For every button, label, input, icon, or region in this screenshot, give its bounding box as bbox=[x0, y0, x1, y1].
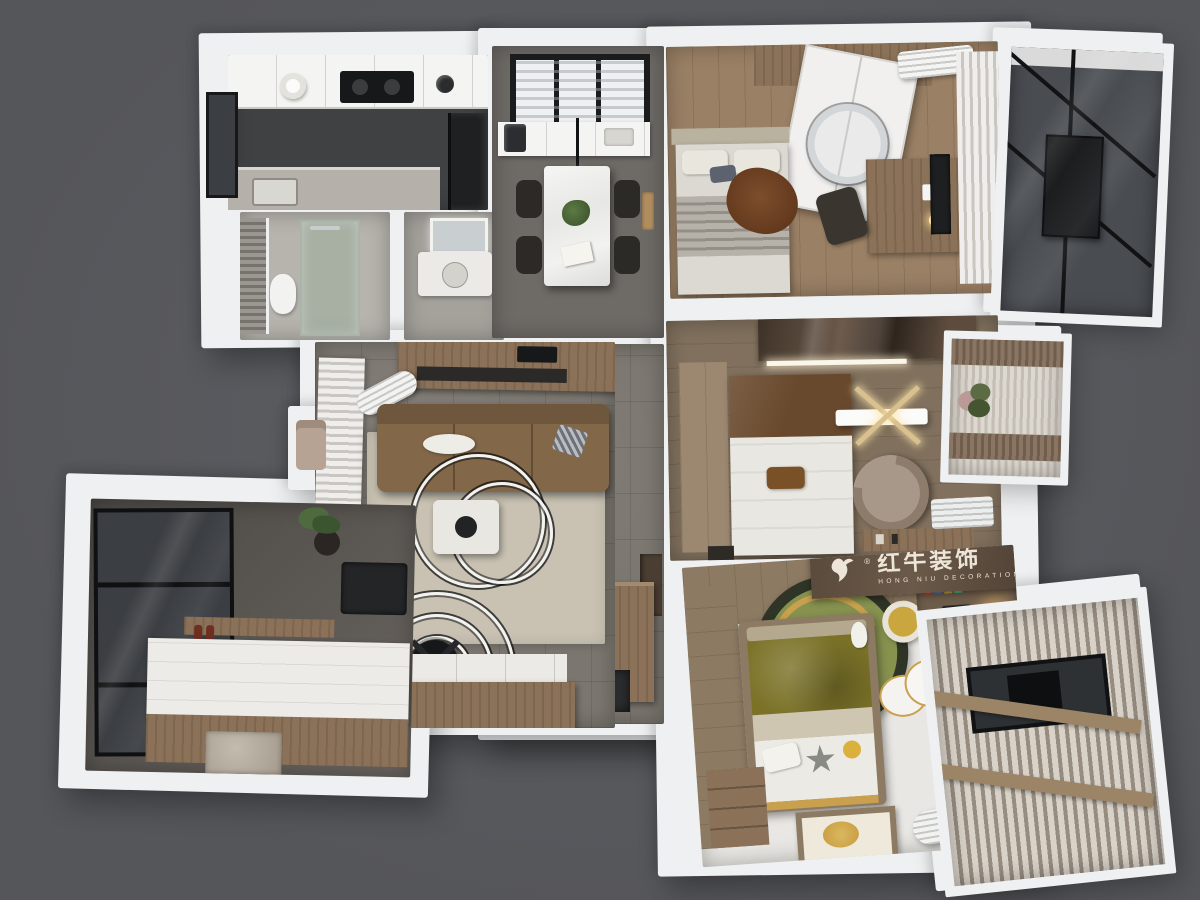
dining-chair bbox=[516, 180, 542, 218]
dining-chair bbox=[614, 180, 640, 218]
drape bbox=[951, 339, 1064, 368]
bed-pillow bbox=[766, 467, 804, 490]
kitchen-sink bbox=[252, 178, 298, 206]
master-bed bbox=[729, 374, 854, 556]
balcony-armchair bbox=[296, 420, 326, 470]
vanity-sink bbox=[418, 252, 492, 296]
coffee-machine bbox=[504, 124, 526, 152]
bed bbox=[676, 143, 791, 295]
bathroom-shower bbox=[240, 212, 390, 340]
flower-arrangement bbox=[958, 383, 993, 418]
kitchen bbox=[228, 55, 488, 210]
table-book bbox=[560, 241, 594, 267]
shower-glass bbox=[300, 220, 360, 336]
shower-head bbox=[310, 226, 340, 230]
nightstand bbox=[708, 546, 734, 561]
wall-tv bbox=[930, 154, 951, 234]
dining-table bbox=[544, 166, 610, 286]
apartment-3d-render: ® 红牛装饰 HONG NIU DECORATION bbox=[0, 0, 1200, 900]
bull-logo-icon bbox=[827, 555, 859, 587]
left-wardrobe bbox=[679, 362, 730, 553]
under-cabinet-light bbox=[767, 359, 907, 366]
vanity-mirror bbox=[430, 218, 488, 254]
balcony-top-right bbox=[990, 36, 1174, 327]
balcony-bottom-left bbox=[85, 499, 416, 778]
kids-window-bay bbox=[916, 587, 1177, 898]
wall-tv-panel bbox=[341, 562, 408, 615]
registered-mark: ® bbox=[864, 556, 870, 565]
sofa-pillow-grey bbox=[552, 424, 589, 458]
dining-chair bbox=[614, 236, 640, 274]
kids-drawers bbox=[706, 767, 769, 849]
bath-window-blinds bbox=[240, 218, 269, 334]
dining-chair bbox=[516, 236, 542, 274]
window-sill-ledge bbox=[935, 763, 1155, 807]
kitchen-window bbox=[206, 92, 238, 198]
bathroom-vanity bbox=[404, 212, 504, 340]
radiator bbox=[931, 496, 994, 529]
drape bbox=[949, 433, 1062, 462]
table-plant bbox=[562, 200, 590, 226]
stone-step bbox=[205, 731, 282, 775]
dining-room bbox=[492, 46, 664, 338]
tv-console bbox=[397, 342, 615, 392]
bedroom-top-right bbox=[666, 41, 1002, 299]
tea-set bbox=[604, 128, 634, 146]
paper-towel-roll bbox=[280, 73, 306, 99]
bay-window bbox=[940, 330, 1072, 485]
fridge bbox=[448, 113, 488, 210]
toilet bbox=[270, 274, 296, 314]
wall-hook-art bbox=[642, 192, 654, 230]
kettle bbox=[436, 75, 454, 93]
potted-plant bbox=[298, 507, 343, 560]
sofa-pillow-white bbox=[423, 434, 475, 454]
coffee-table bbox=[433, 500, 499, 554]
cooktop bbox=[340, 71, 414, 103]
kitchen-lower-counter bbox=[228, 167, 440, 210]
dining-window bbox=[510, 54, 650, 130]
tatami-platform-top bbox=[146, 638, 410, 723]
